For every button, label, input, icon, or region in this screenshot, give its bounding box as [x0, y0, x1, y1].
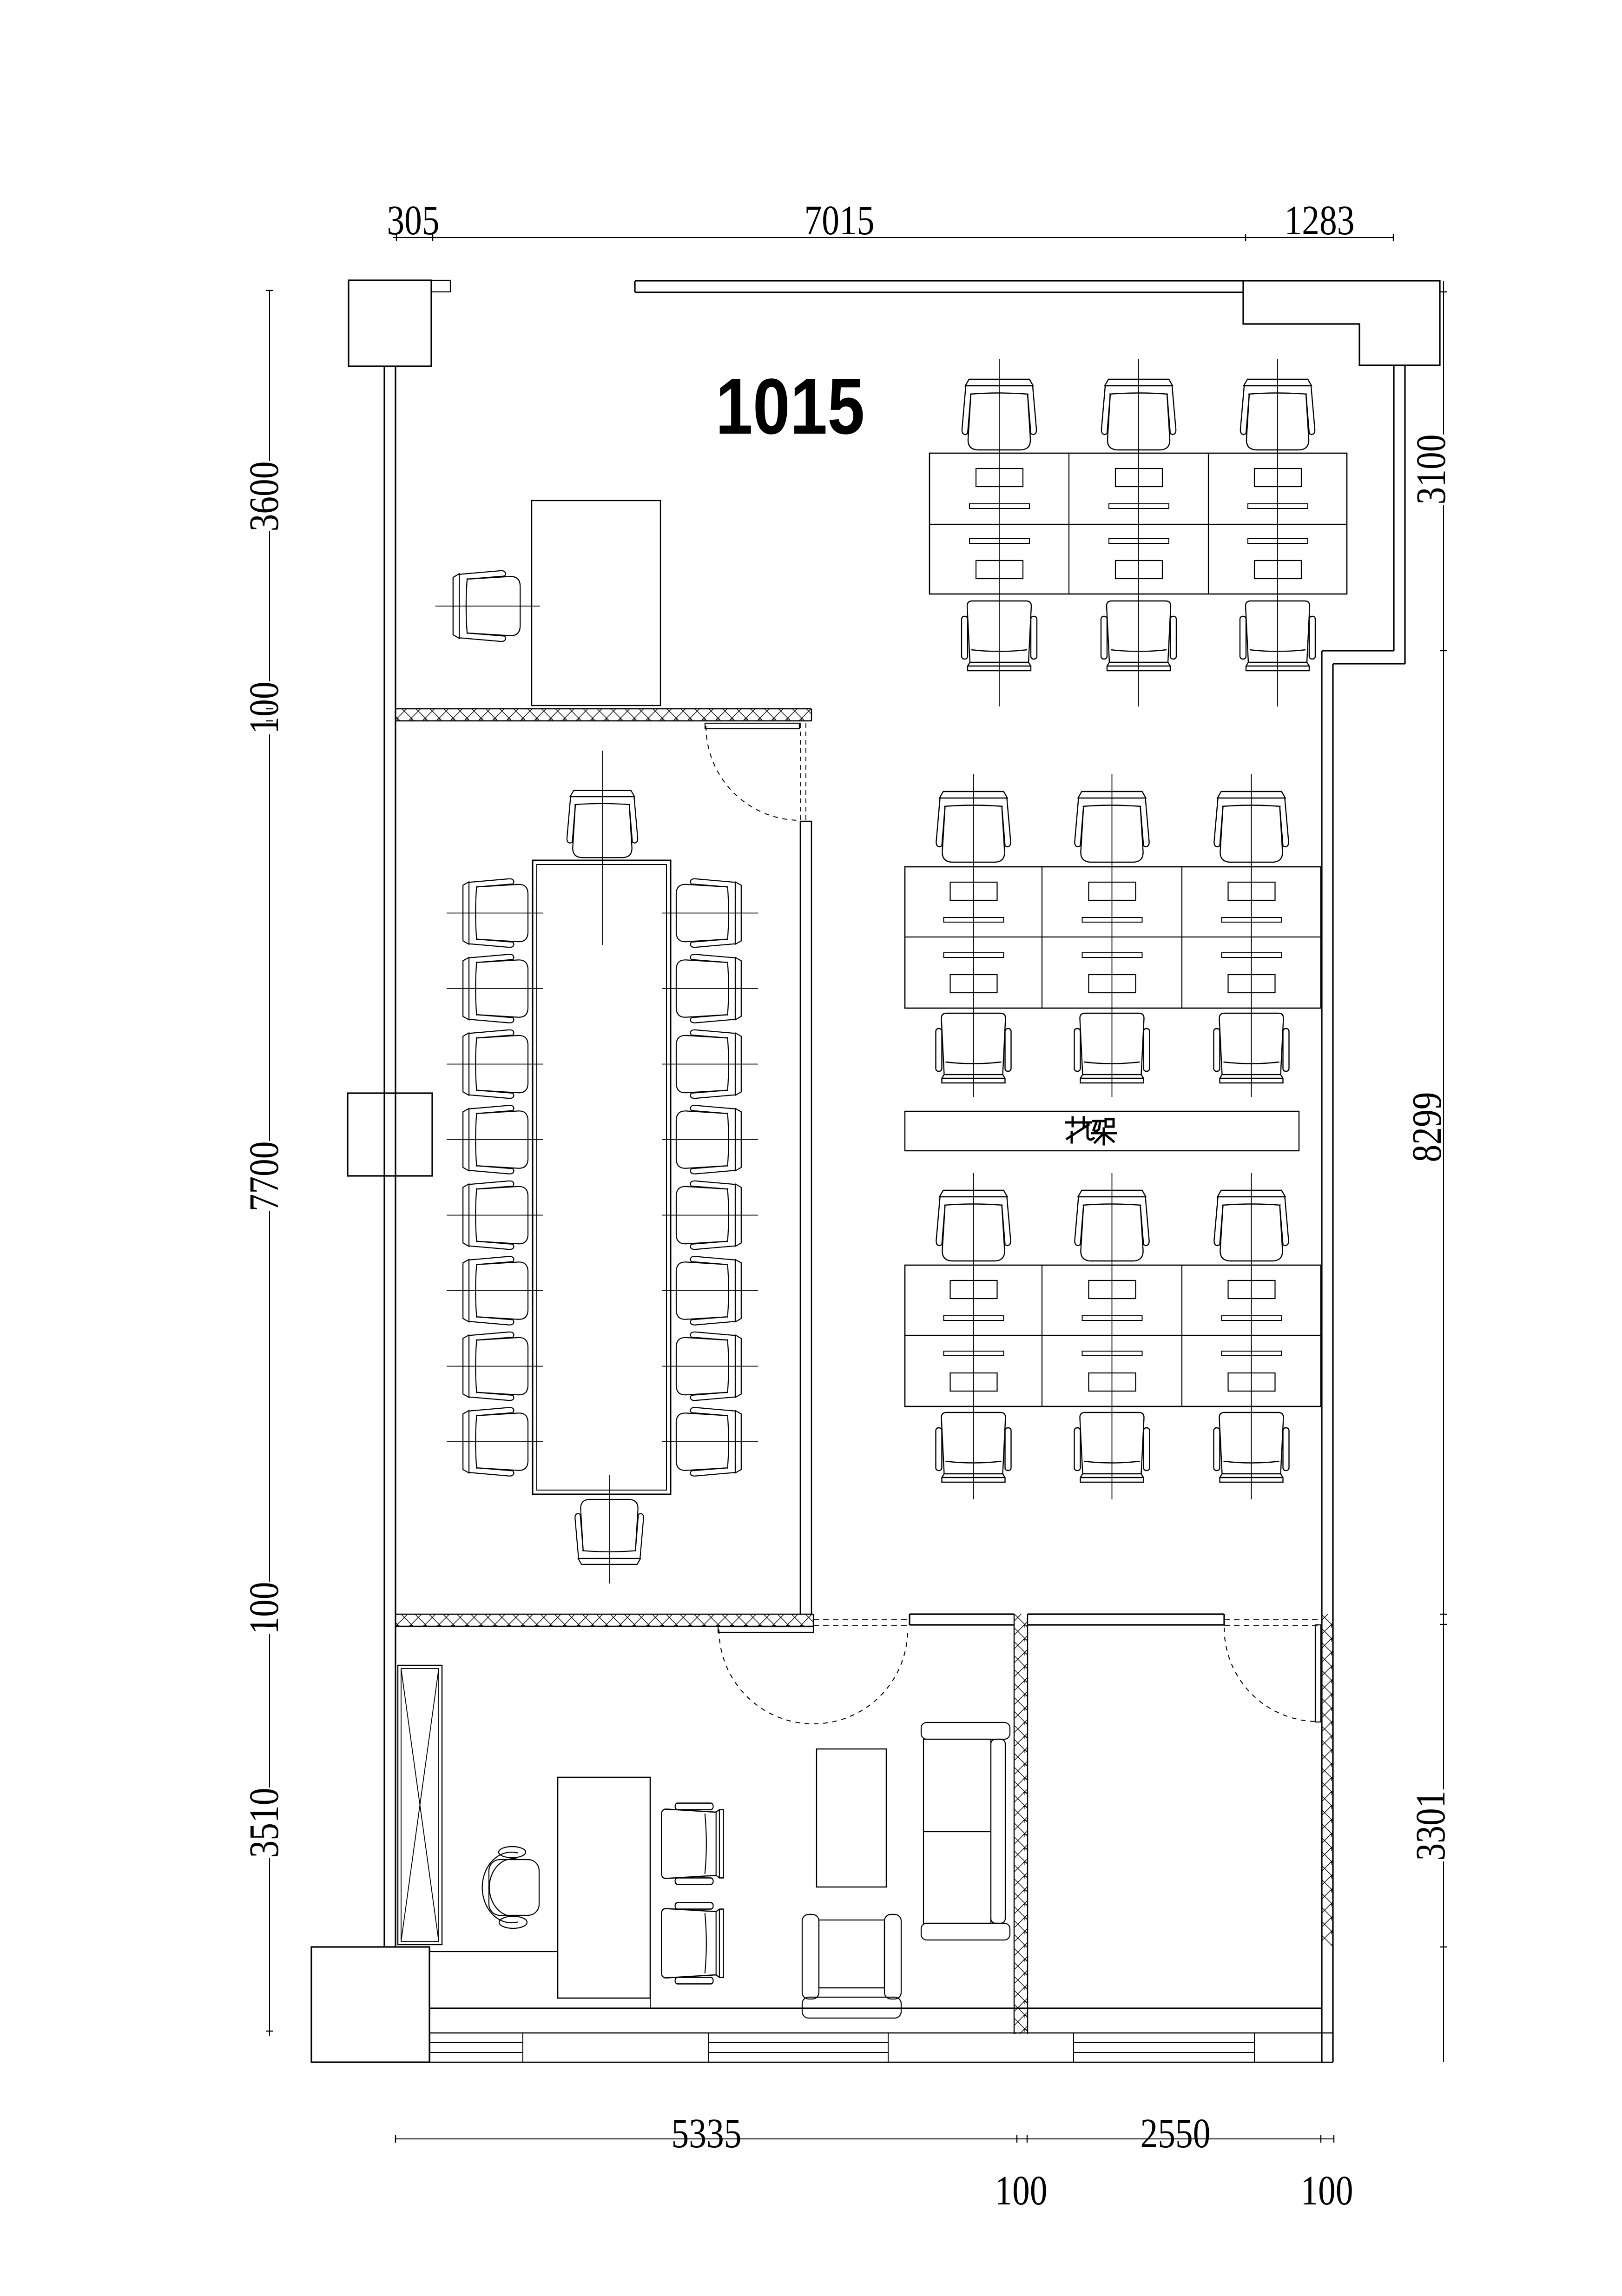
svg-text:3301: 3301 [1408, 1791, 1454, 1861]
svg-text:2550: 2550 [1141, 2111, 1211, 2157]
svg-text:3100: 3100 [1408, 435, 1454, 505]
svg-text:5335: 5335 [672, 2111, 742, 2157]
svg-text:1283: 1283 [1285, 198, 1355, 244]
svg-text:100: 100 [241, 1582, 287, 1635]
svg-text:100: 100 [1301, 2168, 1353, 2214]
svg-text:8299: 8299 [1404, 1092, 1450, 1162]
svg-text:305: 305 [387, 198, 440, 244]
svg-text:3600: 3600 [241, 462, 287, 532]
svg-text:100: 100 [241, 682, 287, 734]
svg-text:100: 100 [995, 2168, 1048, 2214]
svg-text:7700: 7700 [241, 1141, 287, 1212]
svg-text:1015: 1015 [716, 363, 865, 451]
svg-text:3510: 3510 [241, 1788, 287, 1858]
svg-text:7015: 7015 [804, 198, 875, 244]
